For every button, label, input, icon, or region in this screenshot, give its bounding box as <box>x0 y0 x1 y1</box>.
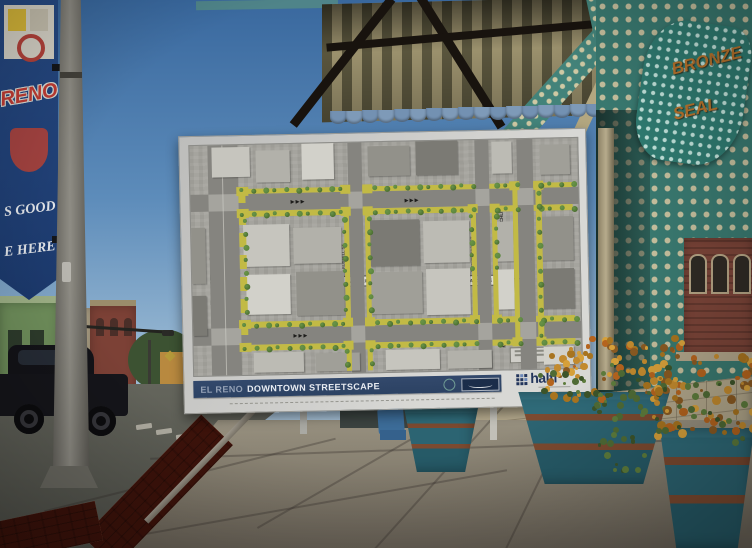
flower <box>643 382 650 389</box>
map-tree <box>460 208 464 212</box>
map-tree <box>240 213 244 217</box>
map-tree <box>244 258 248 262</box>
map-tree <box>547 182 551 186</box>
map-tree <box>498 342 504 348</box>
map-tree <box>368 281 372 285</box>
flower <box>659 377 662 380</box>
map-tree <box>367 216 372 221</box>
flower <box>677 425 681 429</box>
banner-art-yellow <box>8 9 26 31</box>
flower <box>735 376 740 381</box>
map-tree <box>469 214 473 218</box>
map-tree <box>264 212 270 218</box>
arched-window <box>733 254 751 294</box>
flower <box>685 383 692 390</box>
flower <box>642 359 646 363</box>
map-building <box>367 145 410 176</box>
flower <box>595 403 601 409</box>
map-tree <box>559 182 564 187</box>
map-tree <box>562 317 567 322</box>
map-building <box>426 268 471 315</box>
map-tree <box>343 282 348 287</box>
map-tree <box>539 334 543 338</box>
awning-scallop <box>474 107 490 120</box>
flower <box>744 385 749 390</box>
map-tree <box>394 210 398 214</box>
map-tree <box>537 204 543 210</box>
map-tree <box>263 187 269 193</box>
map-tree <box>426 185 430 189</box>
map-tree <box>506 318 510 322</box>
map-tree <box>417 184 423 190</box>
map-tree <box>245 297 249 301</box>
map-tree <box>251 189 256 194</box>
arched-window <box>711 254 729 294</box>
sign-text-line2: SEAL <box>671 88 746 125</box>
map-tree <box>474 319 479 324</box>
truck-wheel <box>86 406 116 436</box>
map-tree <box>539 321 545 327</box>
flower <box>601 371 606 376</box>
flower <box>749 408 752 416</box>
map-tree <box>550 316 554 320</box>
flower <box>678 429 687 438</box>
map-tree <box>333 345 339 351</box>
flower <box>679 408 687 416</box>
map-building <box>491 141 512 173</box>
map-building <box>448 350 492 369</box>
map-tree <box>385 209 391 215</box>
awning-scallop <box>506 106 522 119</box>
flower <box>609 345 614 350</box>
map-tree <box>376 344 381 349</box>
sign-leg <box>490 404 497 440</box>
map-tree <box>244 271 249 276</box>
map-building <box>539 216 574 261</box>
map-tree <box>244 284 250 290</box>
flower <box>572 396 579 403</box>
flower <box>691 414 696 419</box>
map-tree <box>539 308 544 313</box>
map-tree <box>341 322 345 326</box>
map-tree <box>420 319 426 325</box>
map-yellow-streetscape-zone <box>362 184 372 193</box>
map-tree <box>474 341 479 346</box>
map-tree <box>373 210 378 215</box>
streetscape-aerial-map: ROUTE 66 S BICKFORD AVE S BICKFORD AVE R… <box>188 137 583 377</box>
map-tree <box>537 217 541 221</box>
map-building <box>423 220 470 263</box>
flower <box>692 393 699 400</box>
signature-logo-icon <box>461 378 499 392</box>
flower <box>671 335 679 343</box>
flower <box>738 353 747 362</box>
map-tree <box>497 318 503 324</box>
map-tree <box>242 323 246 327</box>
flower <box>655 417 659 421</box>
flower <box>610 363 614 367</box>
flower <box>703 391 710 398</box>
flower <box>583 351 587 355</box>
map-tree <box>375 320 380 325</box>
map-tree <box>574 316 580 322</box>
map-tree <box>267 346 273 352</box>
flower <box>604 400 607 403</box>
flower <box>664 370 672 378</box>
map-tree <box>308 322 312 326</box>
flower <box>712 396 721 405</box>
map-tree <box>343 256 349 262</box>
map-tree <box>254 324 259 329</box>
map-building <box>539 144 570 175</box>
map-tree <box>429 320 433 324</box>
map-yellow-streetscape-zone <box>365 317 375 326</box>
map-tree <box>321 344 326 349</box>
map-tree <box>518 341 523 346</box>
map-tree <box>438 184 443 189</box>
map-tree <box>537 243 543 249</box>
map-tree <box>397 344 401 348</box>
distant-brick-storefront <box>684 238 752 354</box>
map-tree <box>345 349 350 354</box>
map-tree <box>463 342 467 346</box>
map-tree <box>537 230 542 235</box>
map-tree <box>494 240 499 245</box>
map-tree <box>370 361 375 366</box>
map-tree <box>494 183 500 189</box>
map-tree <box>405 185 410 190</box>
flower <box>607 440 614 447</box>
map-tree <box>459 183 463 187</box>
map-tree <box>421 343 427 349</box>
flower <box>697 369 705 377</box>
flower <box>598 393 602 397</box>
map-tree <box>243 347 247 351</box>
map-building <box>296 271 345 316</box>
map-tree <box>471 184 476 189</box>
flower <box>708 411 712 415</box>
map-tree <box>369 307 375 313</box>
map-tree <box>342 230 346 234</box>
awning-scallop <box>554 105 570 118</box>
flower <box>742 370 751 379</box>
map-tree <box>368 294 373 299</box>
map-tree <box>370 348 374 352</box>
map-tree <box>494 227 498 231</box>
flower <box>736 421 740 425</box>
map-tree <box>451 207 457 213</box>
poster-title-bar: EL RENO DOWNTOWN STREETSCAPE <box>193 375 501 398</box>
map-tree <box>318 210 323 215</box>
flower <box>670 347 674 351</box>
map-building <box>211 147 250 178</box>
flower <box>673 377 678 382</box>
flower <box>598 443 602 447</box>
map-tree <box>495 253 501 259</box>
flower <box>653 364 662 373</box>
banner-shield <box>10 128 48 172</box>
map-tree <box>287 322 292 327</box>
truck-wheel <box>14 404 44 434</box>
map-tree <box>243 232 248 237</box>
flower <box>597 410 602 415</box>
map-building <box>386 349 440 370</box>
map-tree <box>462 318 466 322</box>
map-tree <box>550 340 554 344</box>
map-tree <box>368 268 374 274</box>
map-tree <box>406 208 411 213</box>
map-tree <box>388 343 394 349</box>
map-building <box>370 271 423 314</box>
map-tree <box>266 322 272 328</box>
city-seal-icon <box>443 379 455 391</box>
banner-slogan-line2: E HERE <box>1 239 59 262</box>
map-building <box>415 140 458 175</box>
map-tree <box>330 211 336 217</box>
map-tree <box>344 308 348 312</box>
flower <box>719 421 726 428</box>
flower <box>584 391 591 398</box>
flower <box>698 361 702 365</box>
flower <box>580 363 587 370</box>
map-tree <box>299 323 305 329</box>
map-tree <box>560 205 565 210</box>
map-tree <box>418 209 424 215</box>
map-tree <box>276 345 280 349</box>
map-tree <box>515 182 520 187</box>
map-tree <box>409 342 414 347</box>
awning-scallop <box>362 110 378 123</box>
map-tree <box>317 187 322 192</box>
flower <box>618 370 625 377</box>
flower <box>613 468 617 472</box>
pole-band <box>60 72 82 78</box>
flower <box>572 378 579 385</box>
map-tree <box>239 188 243 192</box>
map-tree <box>541 340 547 346</box>
map-tree <box>300 345 306 351</box>
awning-scallop <box>330 111 346 124</box>
flower <box>649 372 655 378</box>
map-tree <box>538 269 543 274</box>
flower <box>665 409 669 413</box>
blue-chair-seat <box>380 430 406 440</box>
map-tree <box>332 321 338 327</box>
map-building <box>255 150 290 183</box>
map-tree <box>284 187 289 192</box>
map-crosswalk <box>211 328 241 346</box>
map-tree <box>571 181 577 187</box>
arched-window <box>689 254 707 294</box>
map-tree <box>469 240 475 246</box>
awning-scallop <box>378 110 394 123</box>
map-tree <box>562 339 567 344</box>
map-tree <box>453 319 459 325</box>
map-tree <box>338 187 342 191</box>
map-tree <box>572 206 578 212</box>
map-tree <box>427 208 431 212</box>
map-tree <box>450 184 456 190</box>
streetscape-display-board: ROUTE 66 S BICKFORD AVE S BICKFORD AVE R… <box>178 128 592 414</box>
map-tree <box>495 266 499 270</box>
map-tree <box>441 319 446 324</box>
flower <box>730 380 735 385</box>
flower <box>620 394 626 400</box>
map-tree <box>504 206 508 210</box>
map-tree <box>442 343 447 348</box>
flower <box>645 346 648 349</box>
halff-grid-icon <box>516 374 527 385</box>
map-tree <box>470 266 475 271</box>
map-building <box>301 143 334 180</box>
flower <box>608 393 613 398</box>
flower <box>655 387 664 396</box>
map-tree <box>506 340 510 344</box>
flower <box>600 438 607 445</box>
map-tree <box>255 346 260 351</box>
awning-scallop <box>490 107 506 120</box>
map-tree <box>472 207 477 212</box>
map-building <box>254 352 304 373</box>
street-photo-scene: BRONZE SEAL RENO S GOOD E HERE ROUTE 66 … <box>0 0 752 548</box>
awning-scallop <box>522 106 538 119</box>
map-tree <box>273 211 277 215</box>
map-tree <box>538 282 544 288</box>
street-light-head <box>162 330 174 336</box>
flower <box>615 463 618 466</box>
map-tree <box>343 295 349 301</box>
flower <box>741 382 744 385</box>
flower <box>636 378 640 382</box>
map-tree <box>252 212 257 217</box>
map-tree <box>306 212 310 216</box>
flower <box>567 391 573 397</box>
flower <box>656 428 662 434</box>
map-tree <box>272 188 276 192</box>
map-tree <box>439 209 444 214</box>
map-building <box>246 274 291 315</box>
banner-art-cream <box>30 9 48 31</box>
map-building <box>540 268 575 309</box>
map-tree <box>469 227 474 232</box>
map-building <box>192 296 207 336</box>
map-crosswalk <box>478 323 492 340</box>
map-tree <box>296 188 302 194</box>
map-tree <box>538 183 544 189</box>
flower <box>740 436 745 441</box>
map-tree <box>503 183 507 187</box>
map-tree <box>396 320 400 324</box>
map-tree <box>339 210 343 214</box>
map-tree <box>342 344 346 348</box>
flower <box>586 344 590 348</box>
map-tree <box>245 310 250 315</box>
flower <box>701 409 707 415</box>
map-tree <box>368 255 373 260</box>
flower <box>589 336 595 342</box>
map-tree <box>305 187 309 191</box>
map-tree <box>518 317 523 322</box>
flower <box>611 381 616 386</box>
map-tree <box>548 206 552 210</box>
map-crosswalk <box>208 194 238 212</box>
banner-city-text: RENO <box>0 79 60 112</box>
map-tree <box>393 185 397 189</box>
flower <box>709 426 717 434</box>
map-building <box>293 227 342 264</box>
map-tree <box>367 242 371 246</box>
map-building <box>316 353 360 372</box>
map-tree <box>243 219 247 223</box>
map-tree <box>494 214 500 220</box>
flower <box>715 417 720 422</box>
flower <box>660 344 668 352</box>
awning-scallop <box>442 108 458 121</box>
map-tree <box>387 321 393 327</box>
flower <box>630 368 637 375</box>
map-crosswalk <box>520 322 536 339</box>
map-crosswalk <box>517 188 533 205</box>
flower <box>741 401 748 408</box>
flower <box>671 426 676 431</box>
map-tree <box>408 320 413 325</box>
flower <box>569 347 573 351</box>
poster-disclaimer-line <box>230 398 495 406</box>
poster-title-main: DOWNTOWN STREETSCAPE <box>247 381 380 394</box>
map-tree <box>574 340 580 346</box>
map-building <box>243 224 290 267</box>
map-tree <box>297 211 303 217</box>
map-tree <box>367 229 373 235</box>
pole-plate <box>62 262 71 282</box>
banner-art-ring <box>17 34 45 62</box>
flower <box>739 422 746 429</box>
map-tree <box>288 346 293 351</box>
banner-slogan-line1: S GOOD <box>1 199 59 222</box>
map-tree <box>285 212 290 217</box>
map-tree <box>453 341 459 347</box>
map-tree <box>343 269 347 273</box>
map-tree <box>536 191 541 196</box>
flower <box>550 392 558 400</box>
flower <box>732 427 739 434</box>
map-tree <box>243 245 249 251</box>
flower <box>630 348 638 356</box>
map-building <box>191 228 206 284</box>
map-tree <box>320 322 325 327</box>
map-tree <box>342 243 347 248</box>
pole-banner: RENO S GOOD E HERE <box>0 0 58 300</box>
poster-title-city: EL RENO <box>200 383 243 394</box>
map-tree <box>342 217 348 223</box>
map-tree <box>329 186 335 192</box>
map-tree <box>516 207 521 212</box>
map-tree <box>372 185 377 190</box>
sign-text-line1: BRONZE <box>670 41 752 80</box>
awning-scallop <box>346 111 362 124</box>
map-tree <box>275 323 279 327</box>
map-tree <box>470 253 474 257</box>
map-yellow-streetscape-zone <box>363 206 373 215</box>
map-tree <box>538 256 542 260</box>
map-tree <box>345 362 351 368</box>
map-tree <box>384 186 390 192</box>
flower <box>587 353 592 358</box>
flower <box>727 395 736 404</box>
map-building <box>369 219 420 266</box>
awning-scallop <box>410 109 426 122</box>
